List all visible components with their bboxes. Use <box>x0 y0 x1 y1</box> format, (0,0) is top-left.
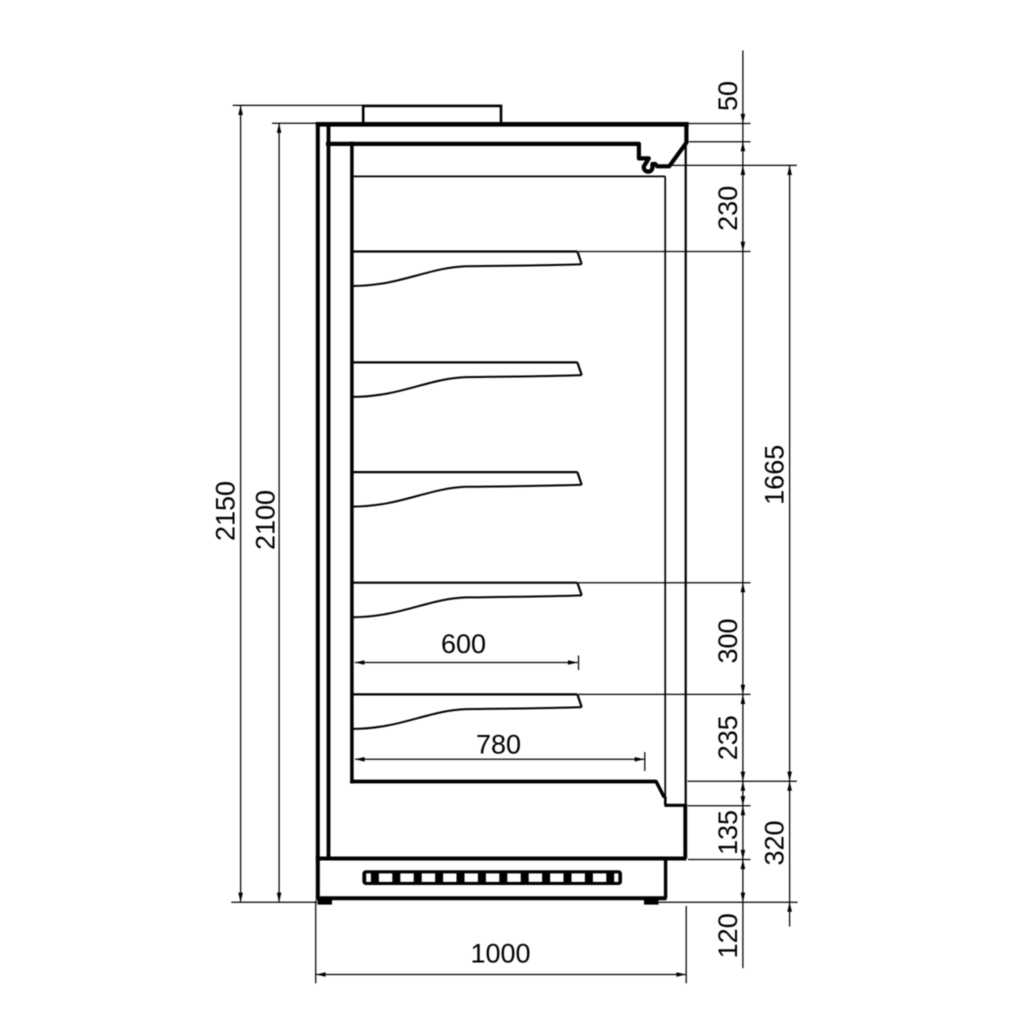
svg-text:600: 600 <box>441 629 486 659</box>
svg-text:2150: 2150 <box>211 481 241 541</box>
svg-text:230: 230 <box>713 186 743 231</box>
svg-text:50: 50 <box>713 81 743 111</box>
svg-text:2100: 2100 <box>251 490 281 550</box>
svg-text:320: 320 <box>760 820 790 865</box>
svg-text:1665: 1665 <box>760 445 790 505</box>
svg-text:135: 135 <box>713 810 743 855</box>
svg-text:300: 300 <box>713 618 743 663</box>
svg-text:780: 780 <box>476 730 521 760</box>
svg-text:120: 120 <box>713 913 743 958</box>
svg-text:1000: 1000 <box>470 938 530 968</box>
svg-text:235: 235 <box>713 715 743 760</box>
